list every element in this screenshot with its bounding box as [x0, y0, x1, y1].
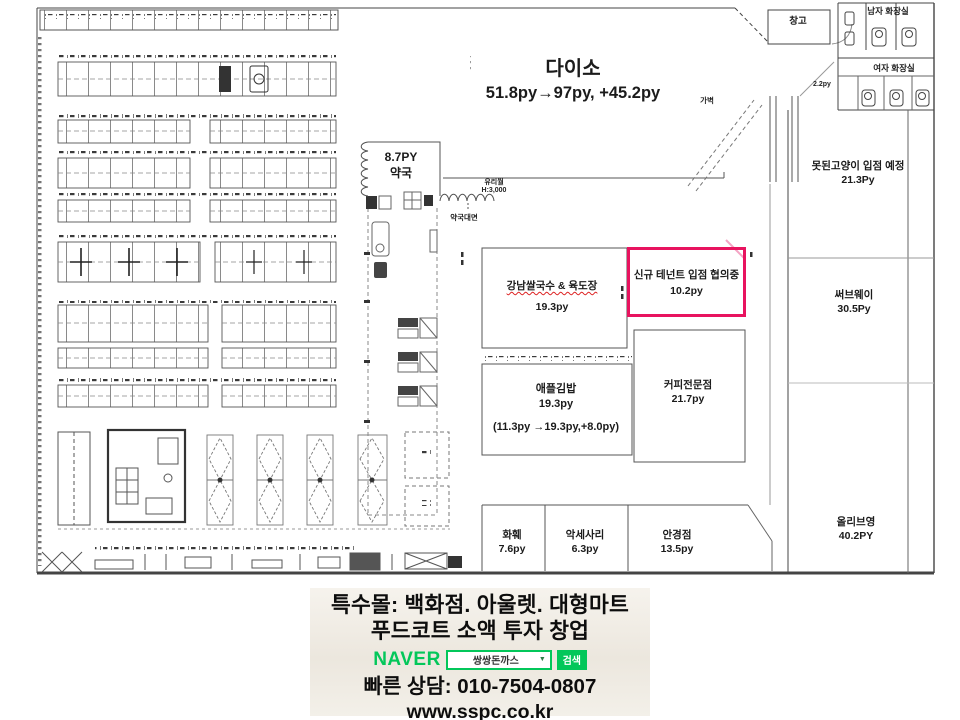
unit-label-flower: 화훼 7.6py: [499, 529, 526, 556]
small-room-size-label: 2.2py: [813, 81, 831, 90]
floorplan: 신규 테넌트 입점 협의중 10.2py 다이소 51.8py→97py, +4…: [0, 0, 960, 585]
new-tenant-label: 신규 테넌트 입점 협의중: [634, 267, 739, 282]
banner-headline-1: 특수몰: 백화점. 아울렛. 대형마트: [0, 588, 960, 618]
new-tenant-size: 10.2py: [670, 285, 703, 297]
unit-label-gangnam: 강남쌀국수 & 육도장 19.3py: [507, 280, 598, 314]
banner-website: www.sspc.co.kr: [0, 701, 960, 720]
unit-label-optician: 안경점 13.5py: [661, 529, 694, 556]
ad-banner: 특수몰: 백화점. 아울렛. 대형마트 푸드코트 소액 투자 창업 NAVER …: [0, 588, 960, 720]
pharmacy-front-note: 약국대면: [450, 213, 478, 222]
unit-label-accessory: 악세사리 6.3py: [566, 529, 605, 556]
partition-note: 가벽: [700, 96, 714, 105]
glass-wall-note: 유리월 H:3,000: [482, 179, 507, 196]
banner-headline-2: 푸드코트 소액 투자 창업: [0, 619, 960, 644]
naver-search-widget: NAVER 쌍쌍돈까스 ▼ 검색: [0, 649, 960, 670]
new-tenant-highlight-box: 신규 테넌트 입점 협의중 10.2py: [627, 247, 746, 317]
unit-label-pharmacy: 8.7PY 약국: [385, 150, 418, 181]
unit-label-subway: 써브웨이 30.5Py: [835, 289, 874, 316]
unit-label-apple-gimbap: 애플김밥 19.3py (11.3py →19.3py,+8.0py): [493, 383, 619, 434]
unit-label-olive-young: 올리브영 40.2PY: [837, 516, 876, 543]
naver-search-button[interactable]: 검색: [557, 650, 587, 670]
banner-contact: 빠른 상담: 010-7504-0807: [0, 675, 960, 699]
mens-restroom-label: 남자 화장실: [867, 6, 908, 17]
storage-label: 창고: [789, 16, 806, 28]
unit-label-daiso: 다이소 51.8py→97py, +45.2py: [486, 57, 660, 104]
naver-search-value: 쌍쌍돈까스: [456, 652, 536, 667]
womens-restroom-label: 여자 화장실: [873, 63, 914, 74]
naver-search-select[interactable]: 쌍쌍돈까스 ▼: [446, 650, 552, 670]
unit-label-bad-cat: 못된고양이 입점 예정 21.3Py: [812, 160, 905, 187]
slide: 신규 테넌트 입점 협의중 10.2py 다이소 51.8py→97py, +4…: [0, 0, 960, 720]
naver-logo: NAVER: [373, 649, 441, 671]
dropdown-caret-icon: ▼: [539, 656, 546, 663]
unit-label-coffee: 커피전문점 21.7py: [664, 379, 712, 406]
